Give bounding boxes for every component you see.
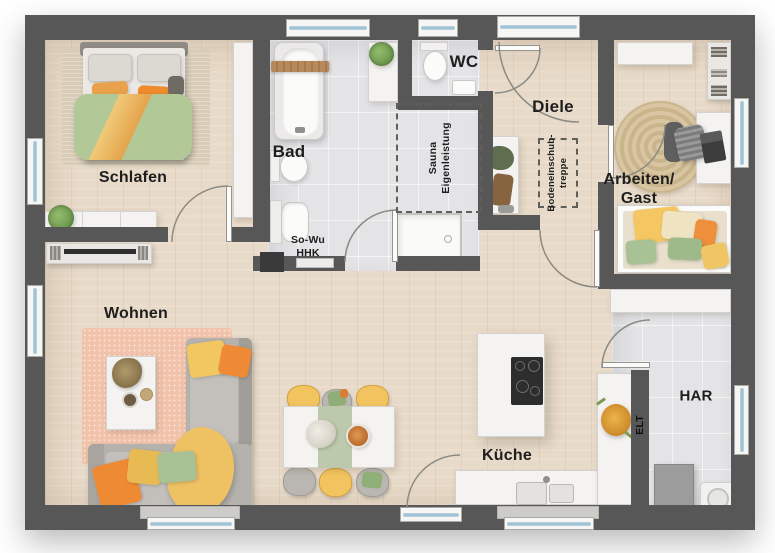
annotation-line: Bodeneinschub- (546, 134, 558, 211)
office-wardrobe (617, 42, 693, 65)
window-wc (418, 19, 458, 37)
annotation-elt: ELT (634, 415, 646, 435)
wall-diele-arbeiten-upper (598, 40, 614, 125)
duvet-stripe (74, 94, 192, 160)
fruit-bowl (346, 424, 370, 448)
window-bedroom (27, 138, 43, 205)
cooktop-burner (528, 360, 540, 372)
faucet (543, 476, 550, 483)
annotation-line: So-Wu (291, 234, 325, 247)
annotation-line: HHK (291, 247, 325, 260)
wall-schlafen-bad (253, 40, 270, 242)
room-label-arbeiten-gast: Arbeiten/ Gast (603, 170, 674, 208)
room-label-diele: Diele (532, 97, 574, 117)
door-leaf-hall (594, 230, 600, 287)
door-leaf-wc (495, 45, 540, 51)
wall-outer-bottom (25, 505, 755, 530)
books (50, 246, 61, 260)
kitchen-sink (549, 484, 574, 503)
double-bed (80, 42, 188, 160)
wall-schlafen-bottom-stub (228, 227, 270, 242)
window-bathroom (286, 19, 370, 37)
annotation-line: treppe (558, 134, 570, 211)
door-leaf-bedroom (226, 186, 232, 242)
terrace-door (400, 507, 462, 522)
dining-chair (319, 468, 352, 497)
napkin-green (361, 471, 383, 489)
decor-bowl (122, 392, 138, 408)
books (711, 47, 727, 57)
wc-sink (452, 80, 476, 95)
heating-unit (654, 464, 694, 508)
room-label-bad: Bad (273, 142, 306, 162)
room-label-schlafen: Schlafen (99, 169, 167, 187)
entrance-door (497, 16, 580, 38)
dining-chair (283, 467, 316, 496)
window-living-south (147, 517, 235, 530)
annotation-attic-ladder: Bodeneinschub- treppe (546, 134, 570, 211)
wall-schlafen-bottom (45, 227, 168, 242)
window-kitchen (504, 517, 594, 530)
tv-screen (64, 249, 136, 254)
bed-duvet (74, 94, 192, 160)
window-living (27, 285, 43, 357)
daybed-pillow-green (667, 237, 702, 261)
books (711, 69, 727, 77)
wc-toilet-bowl (423, 51, 447, 81)
bed-pillow-dark (168, 76, 184, 96)
annotation-sowu-hhk: So-Wu HHK (291, 234, 325, 260)
room-label-kueche: Küche (482, 447, 532, 465)
office-chair (664, 122, 706, 164)
bath-faucet (295, 127, 305, 133)
chimney-block (260, 252, 284, 272)
bedroom-wardrobe (233, 42, 253, 218)
sofa-pillow-orange (218, 344, 253, 379)
room-label-line: Gast (603, 189, 674, 208)
shower-drain (444, 235, 452, 243)
sofa-pillow-green (157, 450, 197, 483)
window-utility (734, 385, 749, 455)
cooktop-burner (515, 361, 525, 371)
cooktop-burner (516, 380, 529, 393)
room-label-har: HAR (679, 388, 712, 405)
annotation-sauna: Sauna Eigenleistung (427, 122, 453, 193)
daybed (617, 205, 731, 273)
annotation-line: Sauna (427, 122, 440, 193)
books (711, 85, 727, 96)
wall-arbeiten-har (598, 274, 755, 289)
napkin-orange (340, 389, 348, 398)
decor-bowl (140, 388, 153, 401)
books (138, 246, 148, 260)
wall-har-left (631, 370, 649, 505)
kitchen-tall-cabinet (597, 373, 632, 505)
bath-plant (369, 42, 394, 66)
wall-outer-top (25, 15, 755, 40)
wall-outer-left (25, 15, 45, 530)
bath-caddy (271, 61, 329, 72)
door-leaf-bathroom (392, 210, 398, 262)
utility-sideboard (610, 289, 731, 313)
kitchen-sink (516, 482, 547, 505)
cooktop-burner (530, 386, 540, 396)
wall-bad-bottom-right (396, 256, 480, 271)
room-label-line: Arbeiten/ (603, 170, 674, 189)
wc-toilet-tank (420, 42, 448, 51)
floor-plan-canvas: Schlafen Bad WC Diele Arbeiten/ Gast Woh… (0, 0, 775, 553)
wall-bad-diele-upper (478, 40, 493, 50)
bookshelf (707, 42, 731, 100)
bathtub (274, 42, 324, 140)
wall-diele-bottom (478, 215, 540, 230)
room-label-wc: WC (450, 52, 479, 72)
window-office (734, 98, 749, 168)
daybed-pillow-green (625, 239, 657, 265)
bed-pillow (88, 54, 132, 82)
annotation-line: Eigenleistung (440, 122, 453, 193)
room-label-wohnen: Wohnen (104, 305, 168, 323)
door-leaf-utility (602, 362, 650, 368)
shoes (498, 205, 514, 213)
